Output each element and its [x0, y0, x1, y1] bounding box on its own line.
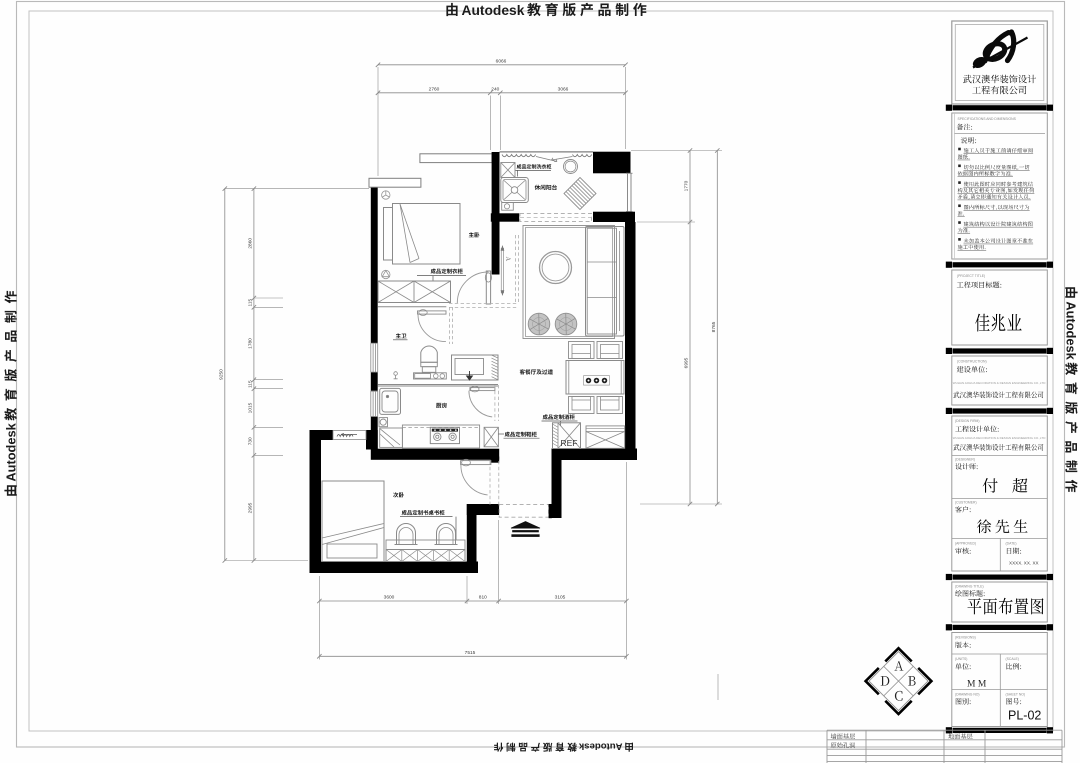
svg-text:Autodesk: Autodesk — [4, 422, 19, 481]
svg-text:(DESIGN FIRM): (DESIGN FIRM) — [955, 419, 980, 423]
svg-text:REF: REF — [561, 438, 578, 448]
svg-text:2760: 2760 — [429, 87, 440, 93]
svg-text:(DRAWING TITLE): (DRAWING TITLE) — [955, 585, 984, 589]
svg-text:(SHEET NO): (SHEET NO) — [1006, 693, 1026, 697]
svg-text:7515: 7515 — [465, 650, 476, 656]
svg-text:2995: 2995 — [247, 502, 253, 513]
svg-text:Autodesk: Autodesk — [578, 741, 622, 752]
svg-text:1770: 1770 — [684, 180, 690, 191]
svg-text:1780: 1780 — [247, 338, 253, 349]
svg-text:XXXX. XX. XX: XXXX. XX. XX — [1009, 561, 1039, 566]
svg-text:3105: 3105 — [555, 595, 566, 601]
svg-text:115: 115 — [247, 380, 253, 388]
svg-text:9250: 9250 — [219, 369, 225, 380]
svg-text:(DATE): (DATE) — [1006, 542, 1017, 546]
svg-text:6066: 6066 — [496, 59, 507, 65]
svg-text:810: 810 — [479, 595, 487, 601]
svg-text:(CUSTOMER): (CUSTOMER) — [955, 501, 977, 505]
svg-text:6995: 6995 — [684, 357, 690, 368]
svg-text:8765: 8765 — [711, 321, 717, 332]
svg-text:WUHAN AOHUA DECORATION & DESIG: WUHAN AOHUA DECORATION & DESIGN ENGINEER… — [953, 381, 1046, 385]
svg-text:(DESIGNER): (DESIGNER) — [955, 458, 975, 462]
svg-text:(DRAWING NO): (DRAWING NO) — [955, 693, 980, 697]
svg-text:3600: 3600 — [384, 595, 395, 601]
svg-text:(REVISIONS): (REVISIONS) — [955, 636, 976, 640]
svg-text:115: 115 — [247, 298, 253, 306]
svg-text:(SCALE): (SCALE) — [1006, 657, 1019, 661]
svg-text:(UNITS): (UNITS) — [955, 657, 967, 661]
svg-text:3066: 3066 — [558, 87, 569, 93]
svg-text:1015: 1015 — [247, 402, 253, 413]
svg-text:2860: 2860 — [247, 238, 253, 249]
svg-text:Autodesk: Autodesk — [1064, 301, 1079, 360]
svg-text:SPECIFICATIONS AND DIMENSIONS: SPECIFICATIONS AND DIMENSIONS — [958, 117, 1017, 121]
svg-text:(CONSTRUCTION): (CONSTRUCTION) — [957, 360, 987, 364]
svg-text:Autodesk: Autodesk — [462, 3, 525, 18]
svg-text:M M: M M — [967, 680, 987, 690]
svg-text:730: 730 — [247, 437, 253, 445]
svg-text:PL-02: PL-02 — [1008, 709, 1041, 723]
svg-text:240: 240 — [491, 87, 499, 93]
svg-text:WUHAN AOHUA DECORATION & DESIG: WUHAN AOHUA DECORATION & DESIGN ENGINEER… — [953, 436, 1046, 440]
svg-text:(PROJECT TITLE): (PROJECT TITLE) — [957, 274, 985, 278]
svg-text:(APPROVED): (APPROVED) — [955, 542, 976, 546]
